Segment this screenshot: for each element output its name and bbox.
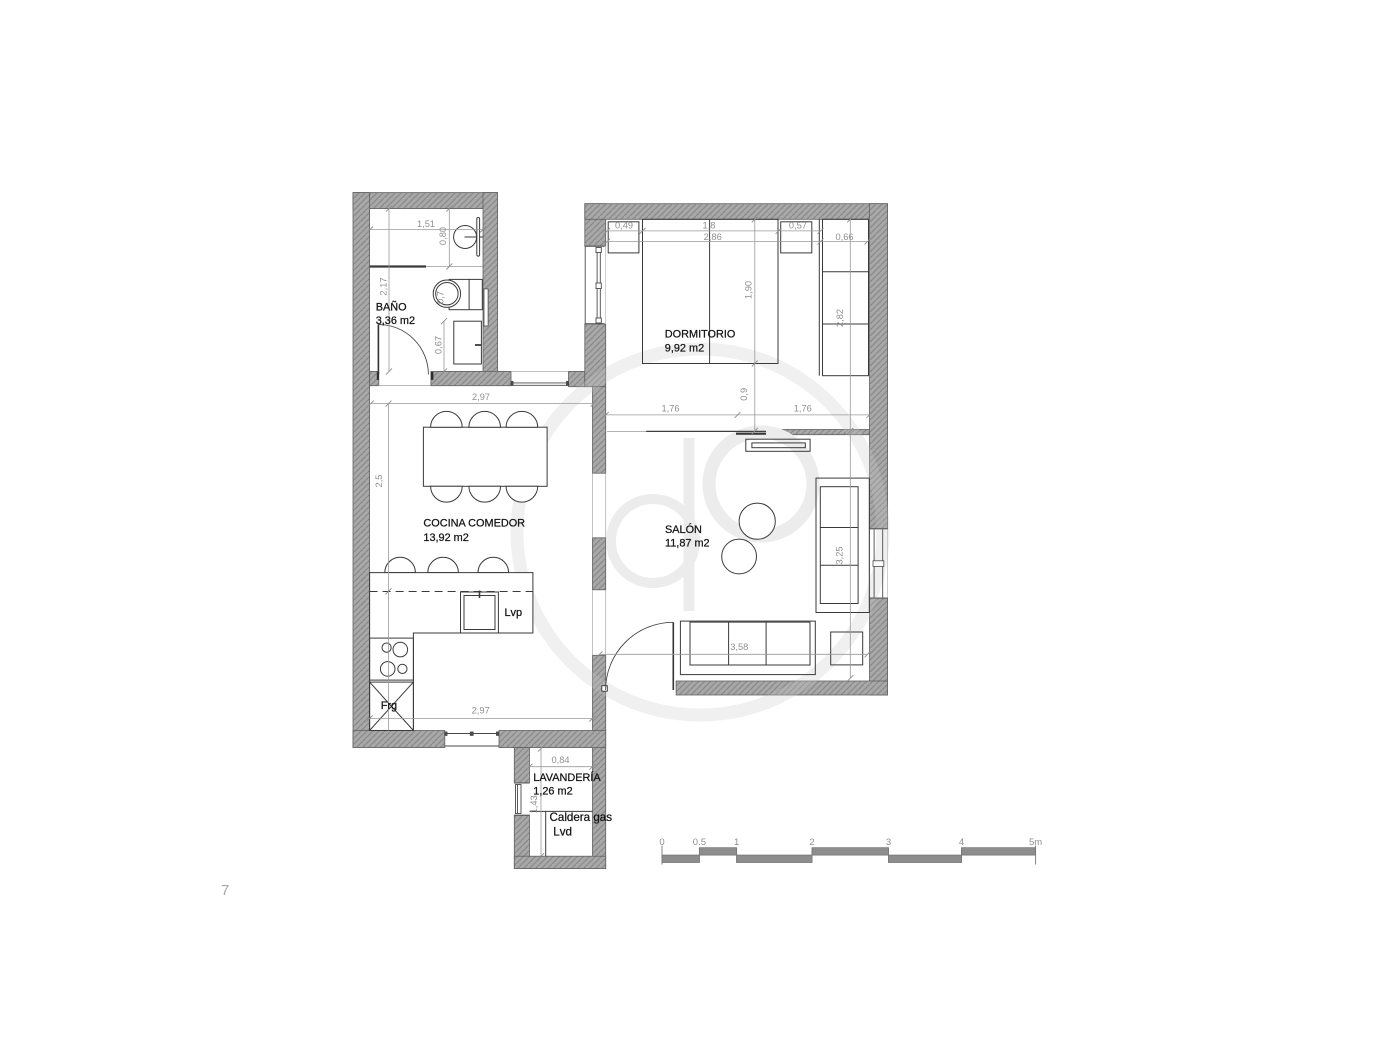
svg-text:2,97: 2,97: [472, 706, 490, 716]
svg-text:2: 2: [809, 837, 814, 848]
svg-text:0,57: 0,57: [789, 220, 807, 230]
svg-text:3,25: 3,25: [835, 546, 845, 564]
svg-text:2,82: 2,82: [835, 309, 845, 327]
svg-text:13,92 m2: 13,92 m2: [423, 532, 468, 544]
svg-text:1,90: 1,90: [744, 281, 754, 299]
svg-text:11,87 m2: 11,87 m2: [665, 538, 710, 550]
svg-text:1: 1: [734, 837, 739, 848]
svg-text:1,43: 1,43: [529, 795, 539, 813]
svg-text:0: 0: [659, 837, 664, 848]
svg-text:3,58: 3,58: [730, 642, 748, 652]
svg-text:1,26 m2: 1,26 m2: [533, 786, 572, 798]
svg-text:4: 4: [959, 837, 964, 848]
svg-text:Lvp: Lvp: [505, 607, 523, 619]
svg-text:BAÑO: BAÑO: [376, 301, 407, 314]
svg-text:LAVANDERÍA: LAVANDERÍA: [533, 771, 601, 784]
svg-text:Caldera gas: Caldera gas: [550, 811, 613, 824]
svg-text:1,51: 1,51: [417, 219, 435, 229]
svg-text:0,80: 0,80: [438, 227, 448, 245]
svg-text:2,5: 2,5: [374, 475, 384, 488]
svg-text:1,76: 1,76: [661, 404, 679, 414]
svg-text:Lvd: Lvd: [553, 826, 572, 839]
svg-text:0,9: 0,9: [739, 388, 749, 401]
svg-text:0,66: 0,66: [835, 232, 853, 242]
svg-text:Frg: Frg: [381, 700, 397, 712]
svg-text:9,92 m2: 9,92 m2: [665, 343, 704, 355]
svg-text:7: 7: [221, 882, 229, 899]
svg-text:0.5: 0.5: [693, 837, 706, 848]
svg-text:1,8: 1,8: [703, 220, 716, 230]
svg-text:2,97: 2,97: [472, 392, 490, 402]
svg-text:1,76: 1,76: [794, 404, 812, 414]
svg-text:2,86: 2,86: [704, 232, 722, 242]
svg-text:COCINA COMEDOR: COCINA COMEDOR: [423, 518, 525, 530]
svg-text:2,17: 2,17: [379, 277, 389, 295]
svg-text:DORMITORIO: DORMITORIO: [665, 329, 736, 341]
svg-text:0,67: 0,67: [434, 336, 444, 354]
svg-text:0,49: 0,49: [615, 220, 633, 230]
svg-text:3,36 m2: 3,36 m2: [376, 315, 415, 327]
svg-text:0,7: 0,7: [436, 291, 446, 304]
svg-text:5m: 5m: [1029, 837, 1042, 848]
svg-text:3: 3: [886, 837, 891, 848]
svg-text:0,84: 0,84: [551, 755, 569, 765]
svg-text:SALÓN: SALÓN: [665, 523, 702, 536]
